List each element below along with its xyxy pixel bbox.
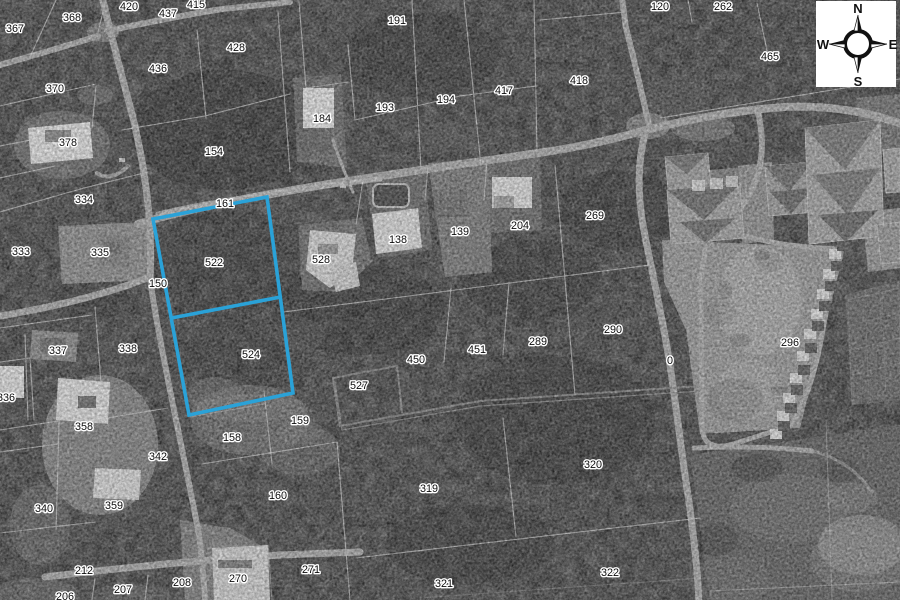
svg-text:206: 206	[56, 591, 74, 600]
svg-text:420: 420	[120, 1, 138, 13]
svg-text:528: 528	[312, 254, 330, 266]
svg-text:320: 320	[584, 459, 602, 471]
svg-text:S: S	[854, 74, 863, 89]
svg-text:342: 342	[149, 451, 167, 463]
svg-text:451: 451	[468, 344, 486, 356]
svg-text:289: 289	[529, 336, 547, 348]
svg-text:296: 296	[781, 337, 799, 349]
svg-text:335: 335	[91, 247, 109, 259]
svg-text:415: 415	[187, 0, 205, 11]
svg-text:321: 321	[435, 578, 453, 590]
svg-text:450: 450	[407, 354, 425, 366]
svg-text:524: 524	[242, 349, 260, 361]
svg-text:191: 191	[388, 15, 406, 27]
svg-text:367: 367	[6, 23, 24, 35]
svg-text:359: 359	[105, 500, 123, 512]
svg-text:370: 370	[46, 83, 64, 95]
svg-text:368: 368	[63, 12, 81, 24]
svg-text:358: 358	[75, 421, 93, 433]
svg-text:340: 340	[35, 503, 53, 515]
svg-text:319: 319	[420, 483, 438, 495]
svg-text:E: E	[889, 37, 898, 52]
svg-text:522: 522	[205, 257, 223, 269]
svg-text:465: 465	[761, 51, 779, 63]
svg-text:0: 0	[667, 355, 673, 367]
svg-text:N: N	[853, 1, 862, 16]
svg-text:334: 334	[75, 194, 93, 206]
svg-text:161: 161	[216, 198, 234, 210]
svg-text:271: 271	[302, 564, 320, 576]
svg-text:417: 417	[495, 85, 513, 97]
svg-text:322: 322	[601, 567, 619, 579]
svg-text:290: 290	[604, 324, 622, 336]
svg-text:184: 184	[313, 113, 331, 125]
svg-text:159: 159	[291, 415, 309, 427]
svg-text:207: 207	[114, 584, 132, 596]
svg-text:336: 336	[0, 392, 15, 404]
svg-text:150: 150	[149, 278, 167, 290]
svg-text:527: 527	[350, 380, 368, 392]
svg-text:333: 333	[12, 246, 30, 258]
svg-text:338: 338	[119, 343, 137, 355]
svg-text:269: 269	[586, 210, 604, 222]
svg-text:194: 194	[437, 94, 455, 106]
svg-text:208: 208	[173, 577, 191, 589]
svg-text:212: 212	[75, 565, 93, 577]
svg-text:436: 436	[149, 63, 167, 75]
svg-text:160: 160	[269, 490, 287, 502]
svg-text:154: 154	[205, 146, 223, 158]
svg-text:437: 437	[159, 8, 177, 20]
svg-text:193: 193	[376, 102, 394, 114]
svg-text:158: 158	[223, 432, 241, 444]
svg-text:W: W	[817, 37, 830, 52]
svg-text:337: 337	[49, 345, 67, 357]
svg-text:120: 120	[651, 1, 669, 13]
svg-text:270: 270	[229, 573, 247, 585]
svg-text:204: 204	[511, 220, 529, 232]
svg-text:138: 138	[389, 234, 407, 246]
svg-text:418: 418	[570, 75, 588, 87]
svg-text:428: 428	[227, 42, 245, 54]
svg-text:378: 378	[59, 137, 77, 149]
svg-text:139: 139	[451, 226, 469, 238]
svg-text:262: 262	[714, 1, 732, 13]
